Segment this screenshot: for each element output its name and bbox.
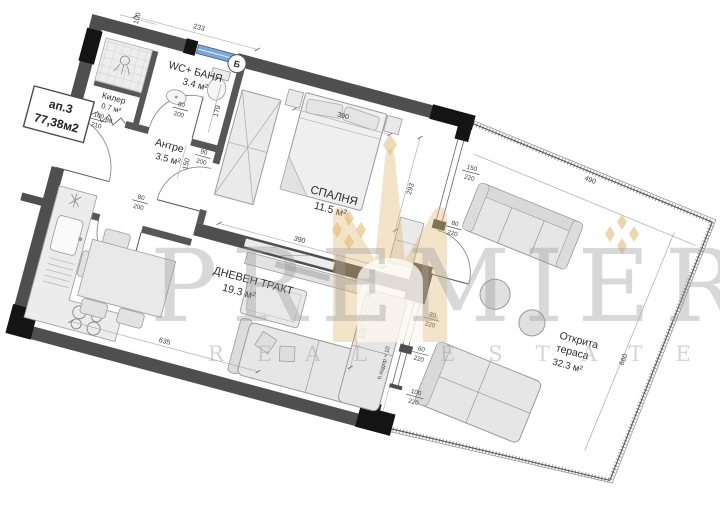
dim-bath-top: 233: [192, 23, 205, 33]
floor-plan-drawing: 490 660 Открита тераса 32.3 м²: [0, 0, 720, 528]
floor-plan-page: 490 660 Открита тераса 32.3 м²: [0, 0, 720, 528]
dim-shower-width: 100: [133, 12, 143, 25]
